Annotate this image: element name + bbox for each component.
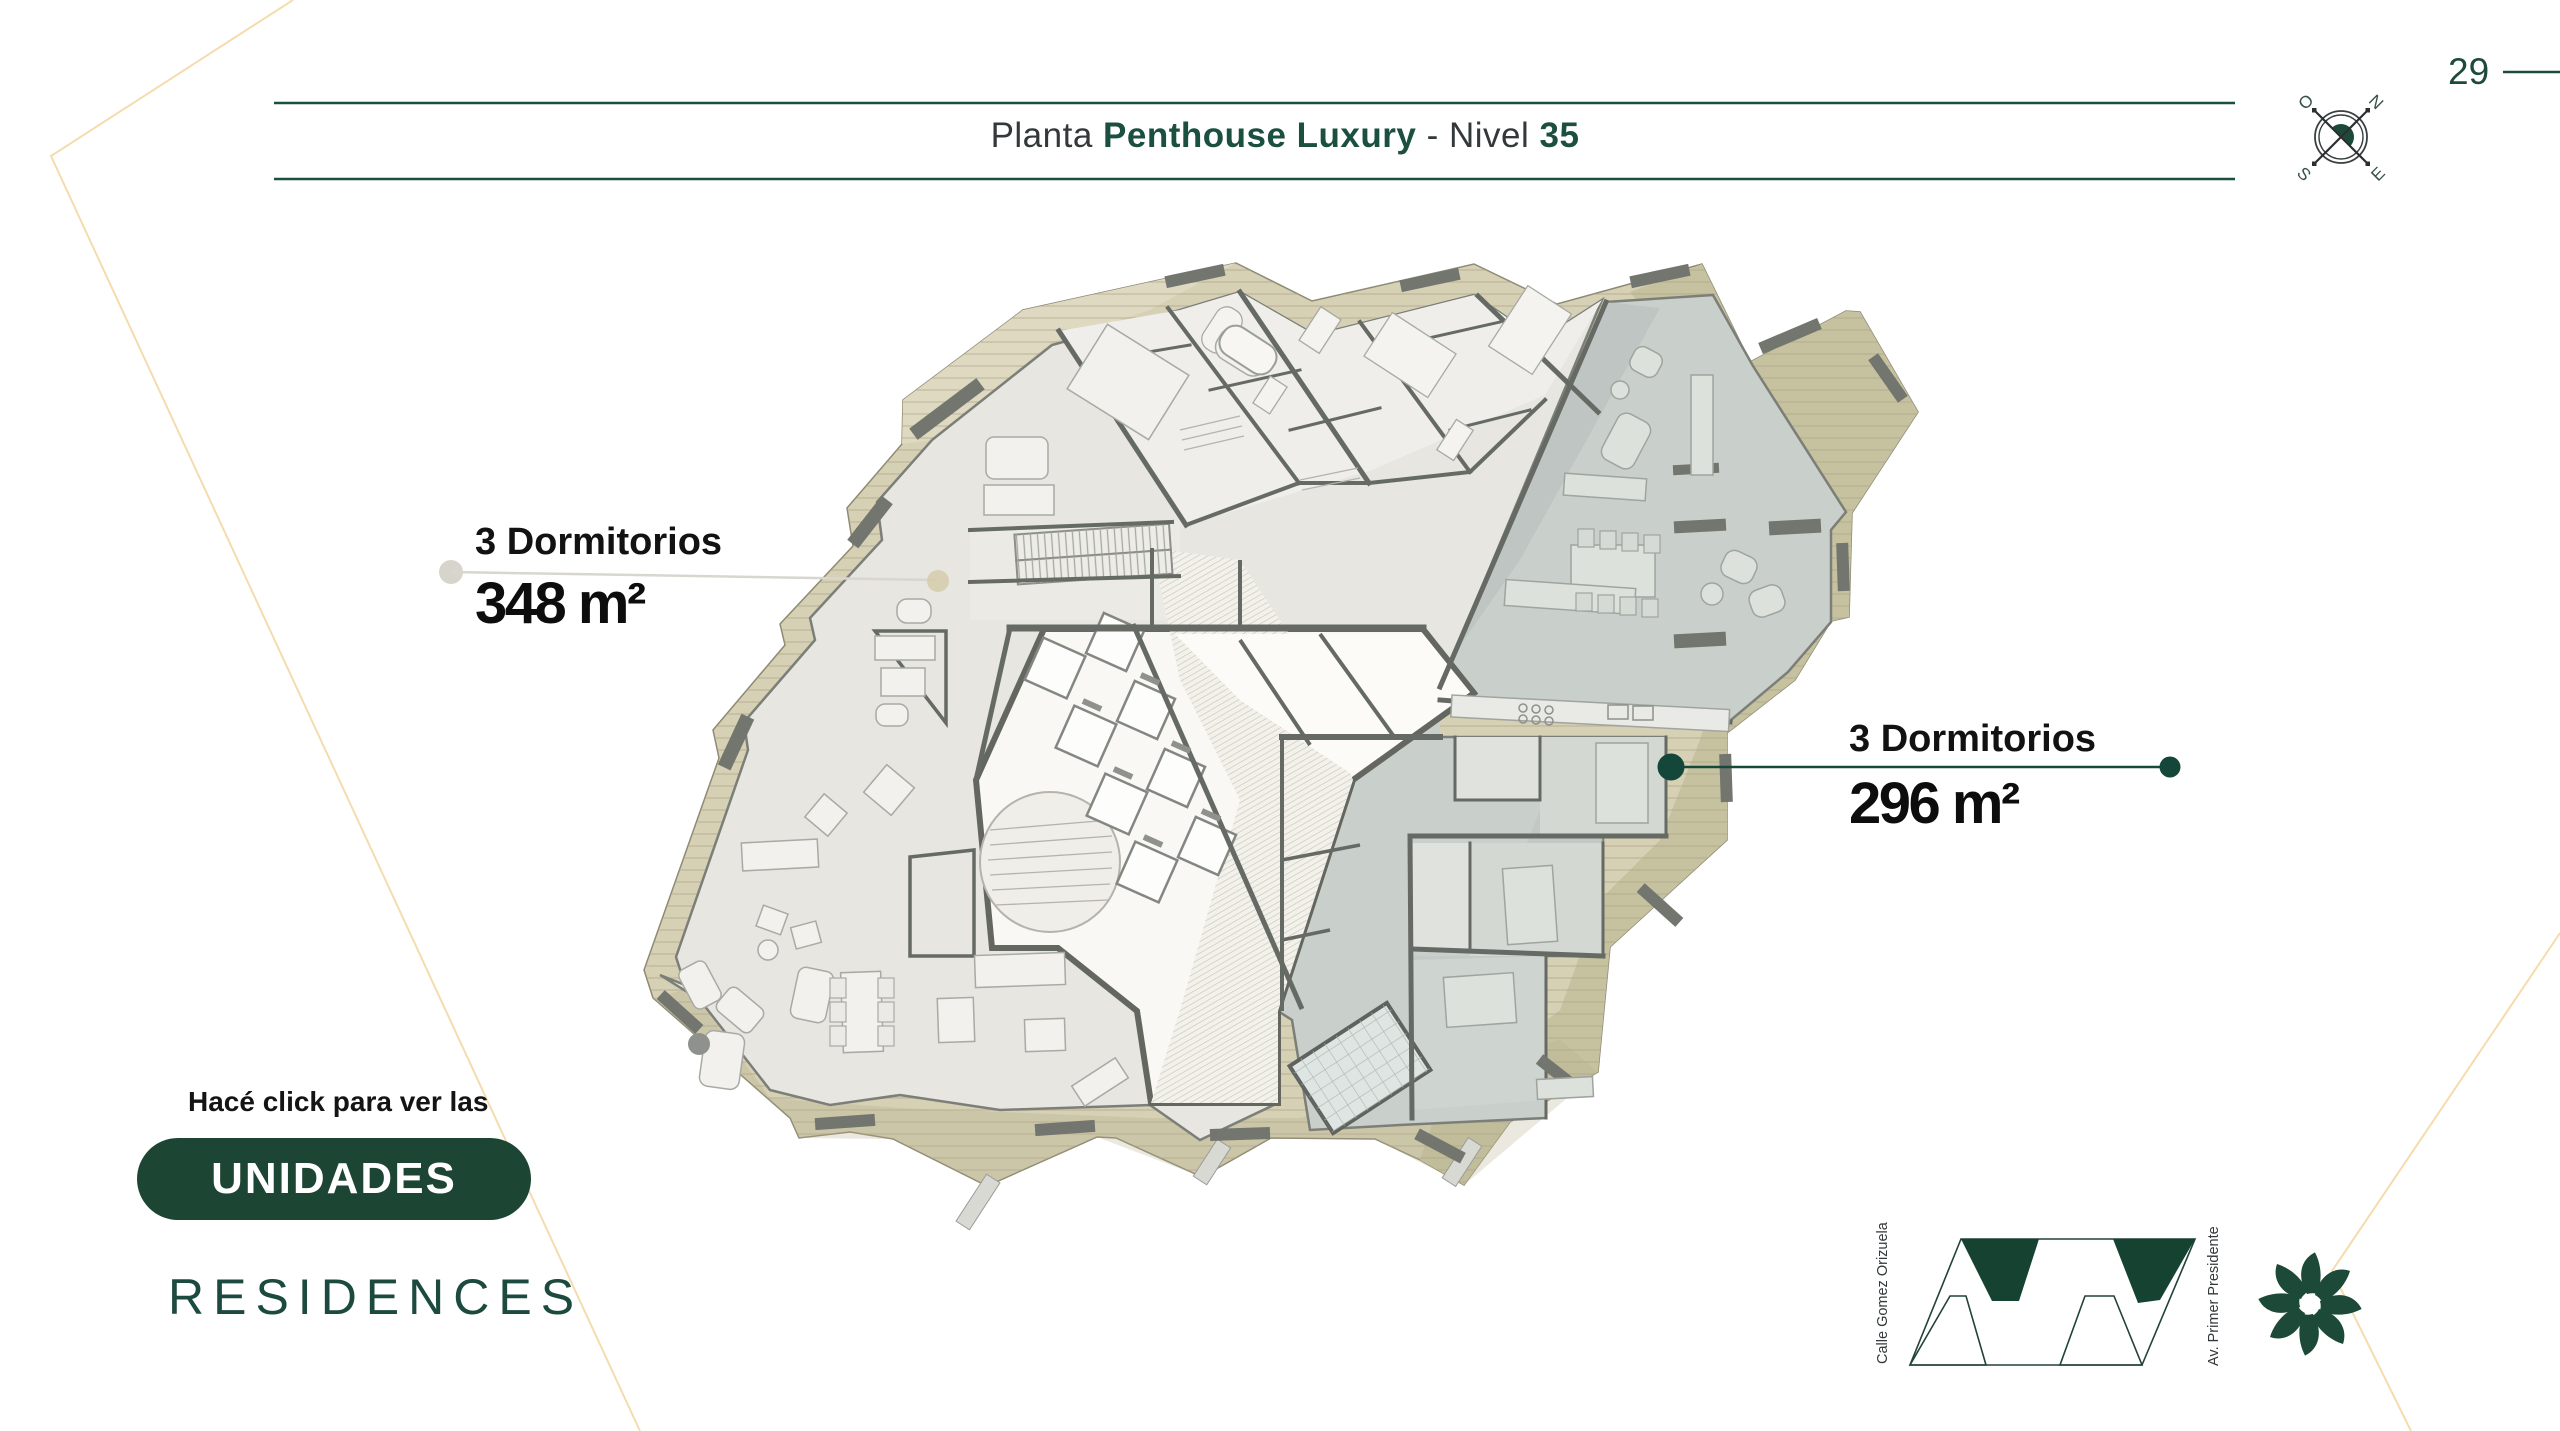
svg-text:S: S <box>2293 163 2314 184</box>
svg-text:E: E <box>2367 163 2388 184</box>
